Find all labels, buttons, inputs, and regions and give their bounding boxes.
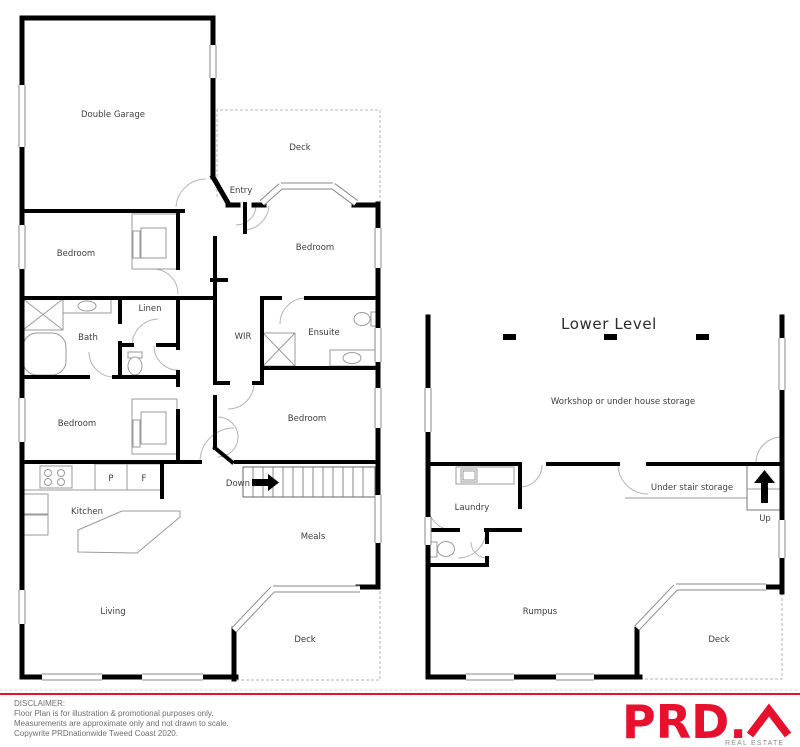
footer: DISCLAIMER: Floor Plan is for illustrati…: [0, 693, 800, 747]
lower-level-plan: Lower Level Workshop or under house stor…: [428, 315, 782, 679]
room-label-bedroom: Bedroom: [57, 249, 95, 259]
logo-tagline: REAL ESTATE: [725, 740, 784, 747]
room-label-living: Living: [100, 607, 125, 617]
room-label-double-garage: Double Garage: [81, 110, 145, 120]
stove: [40, 466, 72, 488]
room-label-ensuite: Ensuite: [308, 328, 340, 338]
room-label-bedroom: Bedroom: [288, 414, 326, 424]
room-label-bedroom: Bedroom: [296, 243, 334, 253]
label-up: Up: [759, 514, 771, 524]
posts: [503, 334, 709, 340]
room-label-laundry: Laundry: [455, 503, 490, 513]
room-label-bath: Bath: [78, 333, 98, 343]
stairs-down: [243, 467, 375, 497]
room-label-wir: WIR: [235, 332, 252, 342]
fixtures: [22, 214, 378, 553]
kitchen-island: [78, 511, 180, 553]
room-label-meals: Meals: [301, 532, 326, 542]
disclaimer-title: DISCLAIMER:: [14, 699, 229, 709]
bathtub: [23, 333, 66, 375]
up-arrow-icon: [754, 470, 775, 503]
room-label-deck-bottom: Deck: [294, 635, 315, 645]
label-pantry: P: [108, 474, 113, 484]
disclaimer-line: Copywrite PRDnationwide Tweed Coast 2020…: [14, 729, 229, 739]
exterior-walls: [428, 317, 782, 677]
room-label-deck-top: Deck: [289, 143, 310, 153]
room-label-deck-lower: Deck: [708, 635, 729, 645]
room-label-rumpus: Rumpus: [523, 607, 558, 617]
exterior-walls: [22, 18, 378, 679]
disclaimer-block: DISCLAIMER: Floor Plan is for illustrati…: [14, 699, 229, 739]
prd-logo-svg: PRD. REAL ESTATE: [622, 697, 797, 747]
room-label-entry: Entry: [230, 186, 253, 196]
label-down: Down: [226, 479, 250, 489]
disclaimer-line: Measurements are approximate only and no…: [14, 719, 229, 729]
toilet: [128, 357, 142, 375]
toilet: [354, 313, 370, 326]
toilet: [438, 542, 455, 557]
room-label-kitchen: Kitchen: [71, 507, 103, 517]
floorplan-drawing: Double Garage Deck Entry Bedroom Bedroom…: [0, 0, 800, 692]
label-fridge: F: [142, 474, 147, 484]
windows: [22, 45, 378, 677]
upper-level-plan: Double Garage Deck Entry Bedroom Bedroom…: [22, 18, 380, 680]
room-label-under-stair-storage: Under stair storage: [651, 483, 733, 493]
disclaimer-line: Floor Plan is for illustration & promoti…: [14, 709, 229, 719]
footer-divider: [0, 693, 800, 695]
prd-logo: PRD. REAL ESTATE: [622, 697, 797, 747]
room-label-linen: Linen: [138, 304, 161, 314]
lower-level-title: Lower Level: [561, 315, 657, 333]
roof-icon: [750, 710, 788, 735]
room-label-workshop: Workshop or under house storage: [551, 397, 695, 407]
down-arrow-icon: [252, 474, 279, 491]
room-label-bedroom: Bedroom: [58, 419, 96, 429]
floorplan-page: Double Garage Deck Entry Bedroom Bedroom…: [0, 0, 800, 747]
